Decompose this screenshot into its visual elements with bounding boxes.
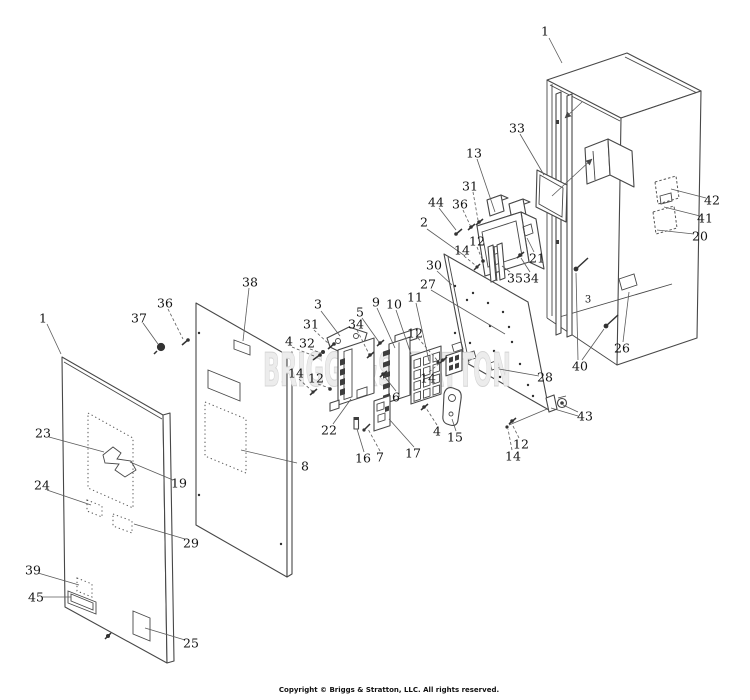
callout-38: 38: [242, 275, 258, 290]
callout-11: 11: [407, 290, 423, 305]
callout-14: 14: [420, 371, 436, 386]
callout-14: 14: [505, 449, 521, 464]
bolt-40a: [574, 258, 588, 271]
callout-29: 29: [183, 536, 199, 551]
callout-3: 3: [585, 295, 591, 306]
left-door-panel: [62, 357, 174, 663]
callout-12: 12: [308, 371, 324, 386]
screw-14c: [474, 264, 480, 270]
callout-45: 45: [28, 590, 44, 605]
callout-35: 35: [507, 271, 523, 286]
callout-2: 2: [420, 215, 428, 230]
callout-22: 22: [321, 423, 337, 438]
callout-14: 14: [288, 366, 304, 381]
enclosure-cabinet: [547, 53, 701, 365]
parts-diagram-canvas: BRIGGS&STRATTON: [0, 0, 750, 700]
callout-40: 40: [572, 359, 588, 374]
callout-28: 28: [537, 370, 553, 385]
screw-44: [454, 229, 462, 236]
screw-12b: [436, 360, 439, 363]
callout-9: 9: [372, 295, 380, 310]
connector-plate-17: [374, 396, 390, 431]
callout-14: 14: [454, 243, 470, 258]
callout-19: 19: [171, 476, 187, 491]
callout-17: 17: [405, 446, 421, 461]
callout-36: 36: [157, 296, 173, 311]
callout-24: 24: [34, 478, 50, 493]
callout-39: 39: [25, 563, 41, 578]
screw-4b: [421, 404, 428, 410]
callout-7: 7: [376, 450, 384, 465]
exploded-parts-diagram: BRIGGS&STRATTON: [0, 0, 750, 700]
screw-36: [182, 338, 190, 345]
bolt-40b: [604, 315, 618, 328]
callout-1: 1: [39, 311, 47, 326]
callout-30: 30: [426, 258, 442, 273]
bolt-32: [321, 350, 325, 354]
callout-26: 26: [614, 341, 630, 356]
copyright-notice: Copyright © Briggs & Stratton, LLC. All …: [279, 686, 499, 694]
callout-8: 8: [301, 459, 309, 474]
screw-36b: [468, 224, 475, 230]
callout-27: 27: [420, 277, 436, 292]
grommet-37: [154, 344, 165, 355]
callout-25: 25: [183, 636, 199, 651]
callout-6: 6: [392, 390, 400, 405]
callout-32: 32: [299, 336, 315, 351]
clip-16: [354, 417, 360, 429]
callout-42: 42: [704, 193, 720, 208]
callout-13: 13: [466, 146, 482, 161]
screw-12c: [481, 259, 485, 263]
callout-1: 1: [541, 24, 549, 39]
callout-44: 44: [428, 195, 444, 210]
callout-4: 4: [285, 334, 293, 349]
callout-12: 12: [469, 234, 485, 249]
callout-20: 20: [692, 229, 708, 244]
callout-41: 41: [697, 211, 713, 226]
callout-21: 21: [529, 251, 545, 266]
callout-34: 34: [523, 271, 539, 286]
callout-31: 31: [462, 179, 478, 194]
callout-15: 15: [447, 430, 463, 445]
callout-36: 36: [452, 197, 468, 212]
callout-34: 34: [348, 317, 364, 332]
callout-37: 37: [131, 311, 147, 326]
callout-43: 43: [577, 409, 593, 424]
callout-31: 31: [303, 317, 319, 332]
callout-4: 4: [433, 424, 441, 439]
callout-12: 12: [407, 326, 423, 341]
callout-10: 10: [386, 297, 402, 312]
callout-16: 16: [355, 451, 371, 466]
door-bottom-screw: [105, 633, 111, 639]
callout-23: 23: [35, 426, 51, 441]
callout-3: 3: [314, 297, 322, 312]
callout-33: 33: [509, 121, 525, 136]
screw-14d: [505, 425, 508, 428]
